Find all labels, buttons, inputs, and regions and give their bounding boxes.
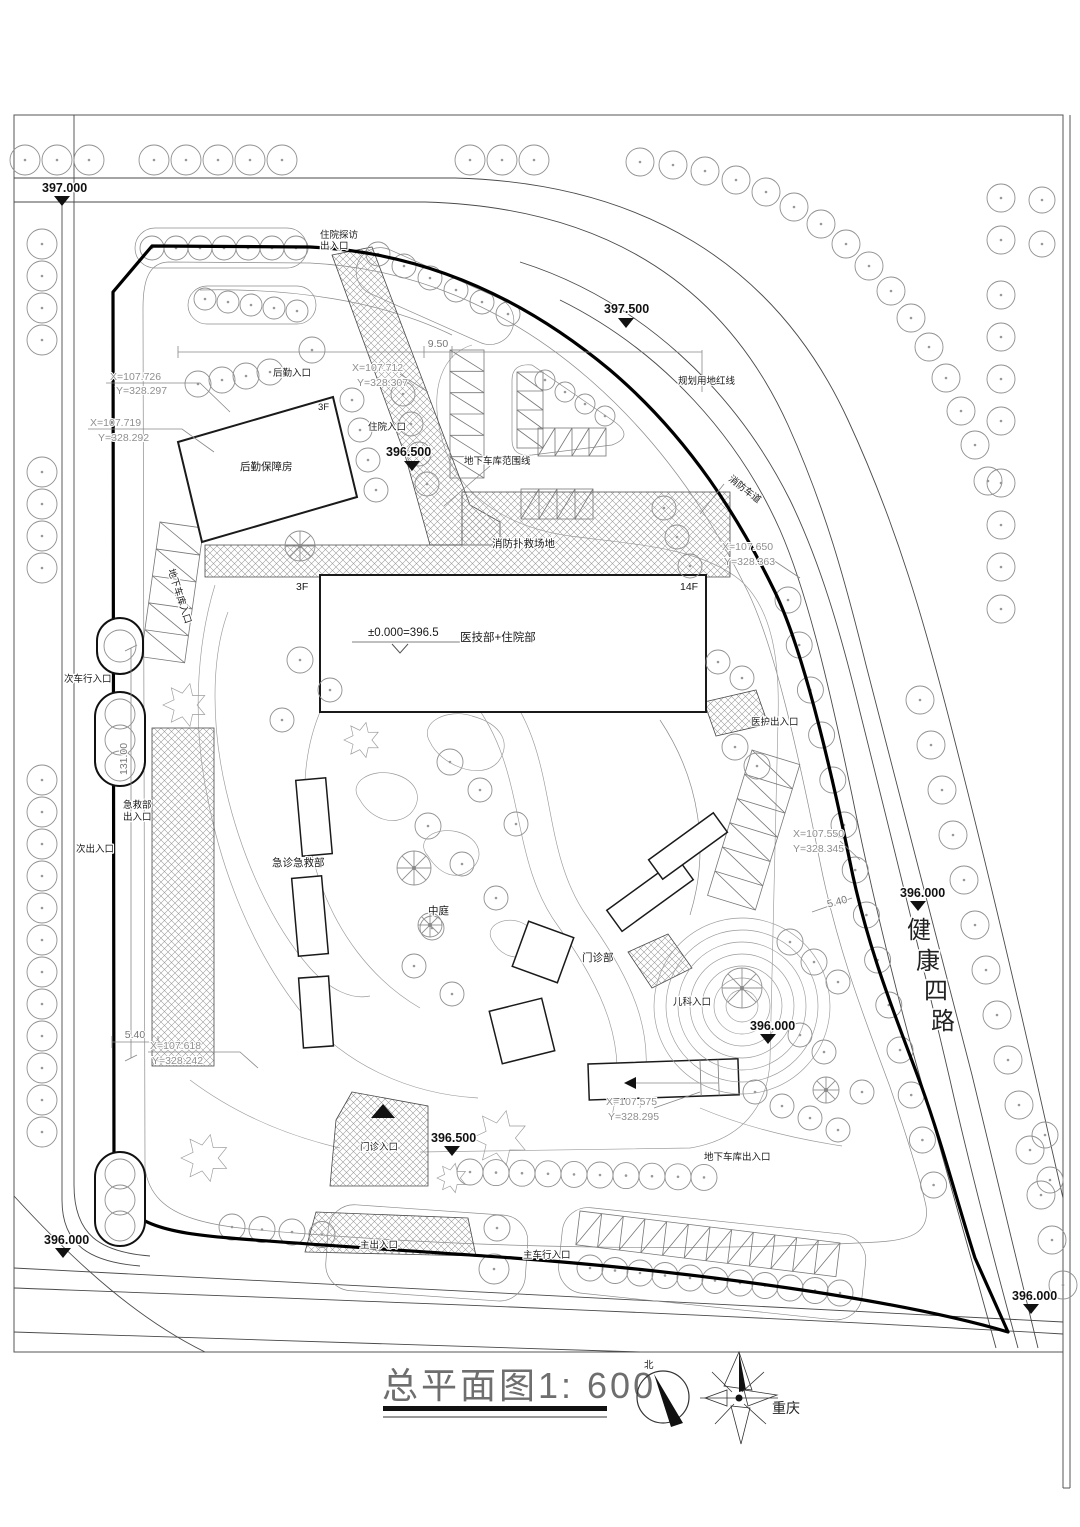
site-plan-drawing: 397.000 397.500 396.500 396.000 396.000 …	[0, 0, 1080, 1527]
label-visit-entrance-2: 出入口	[320, 240, 349, 252]
coord-p3-y: Y=328.307	[357, 377, 408, 389]
elevation-397-000: 397.000	[42, 181, 87, 195]
label-atrium: 中庭	[428, 904, 449, 917]
elevation-396-500-a: 396.500	[386, 445, 431, 459]
label-logistics-floors: 3F	[318, 402, 329, 413]
elevation-396-000-d: 396.000	[1012, 1289, 1057, 1303]
label-outpatient-entrance: 门诊入口	[360, 1141, 398, 1153]
road-name-char-2: 康	[916, 948, 940, 975]
coord-p4-x: X=107.650	[722, 541, 773, 553]
coord-p1-y: Y=328.297	[116, 385, 167, 397]
elevation-397-500: 397.500	[604, 302, 649, 316]
label-visit-entrance-1: 住院探访	[320, 229, 359, 241]
coord-p5-x: X=107.550	[793, 828, 844, 840]
site-plan-sheet: 397.000 397.500 396.500 396.000 396.000 …	[0, 0, 1080, 1527]
label-main-level: ±0.000=396.5	[368, 627, 439, 639]
dim-5-40-left: 5.40	[125, 1029, 146, 1041]
elevation-396-500-b: 396.500	[431, 1131, 476, 1145]
label-secondary-vehicle-entrance: 次车行入口	[64, 673, 112, 685]
label-logistics-entrance: 后勤入口	[273, 367, 311, 379]
label-emergency-dept: 急诊急救部	[272, 856, 325, 869]
coord-p5-y: Y=328.345	[793, 843, 844, 855]
wind-rose-icon	[700, 1352, 778, 1444]
label-main-floors-right: 14F	[680, 581, 698, 593]
coord-p6-y: Y=328.242	[152, 1055, 203, 1067]
label-emergency-entrance-2: 出入口	[123, 811, 152, 823]
elevation-396-000-a: 396.000	[900, 886, 945, 900]
coord-p7-x: X=107.575	[606, 1096, 657, 1108]
label-inpatient-entrance: 住院入口	[368, 421, 406, 433]
road-name-char-3: 四	[924, 978, 948, 1005]
label-logistics-building: 后勤保障房	[240, 460, 293, 473]
dim-9-50: 9.50	[428, 338, 449, 350]
coord-p6-x: X=107.618	[150, 1040, 201, 1052]
elevation-396-000-b: 396.000	[750, 1019, 795, 1033]
coord-p3-x: X=107.712	[352, 362, 403, 374]
label-garage-exit: 地下车库出入口	[704, 1151, 771, 1163]
north-label: 北	[644, 1360, 654, 1371]
label-outpatient-dept: 门诊部	[582, 951, 614, 964]
coord-p4-y: Y=328.363	[724, 556, 775, 568]
label-main-exit: 主出入口	[360, 1239, 398, 1251]
label-emergency-entrance-1: 急救部	[123, 799, 152, 811]
road-name-char-4: 路	[931, 1008, 955, 1035]
label-staff-exit: 医护出入口	[751, 716, 799, 728]
coord-p2-x: X=107.719	[90, 417, 141, 429]
elevation-396-000-c: 396.000	[44, 1233, 89, 1247]
dim-131-00: 131.00	[118, 743, 130, 775]
label-main-building: 医技部+住院部	[460, 630, 536, 644]
road-name-char-1: 健	[907, 917, 931, 944]
label-main-floors-left: 3F	[296, 581, 308, 593]
coord-p1-x: X=107.726	[110, 371, 161, 383]
title-underline-thick	[383, 1406, 607, 1411]
label-red-line: 规划用地红线	[678, 375, 736, 387]
title-block: 总平面图1: 600 北 重庆	[382, 1352, 800, 1444]
coord-p2-y: Y=328.292	[98, 432, 149, 444]
coord-p7-y: Y=328.295	[608, 1111, 659, 1123]
label-garage-boundary: 地下车库范围线	[464, 455, 531, 467]
city-label: 重庆	[772, 1400, 800, 1416]
label-secondary-exit: 次出入口	[76, 843, 114, 855]
label-fire-site: 消防扑救场地	[492, 537, 555, 550]
label-main-vehicle-entrance: 主车行入口	[523, 1249, 571, 1261]
drawing-title: 总平面图1: 600	[382, 1365, 656, 1406]
label-pediatric-entrance: 儿科入口	[673, 996, 711, 1008]
